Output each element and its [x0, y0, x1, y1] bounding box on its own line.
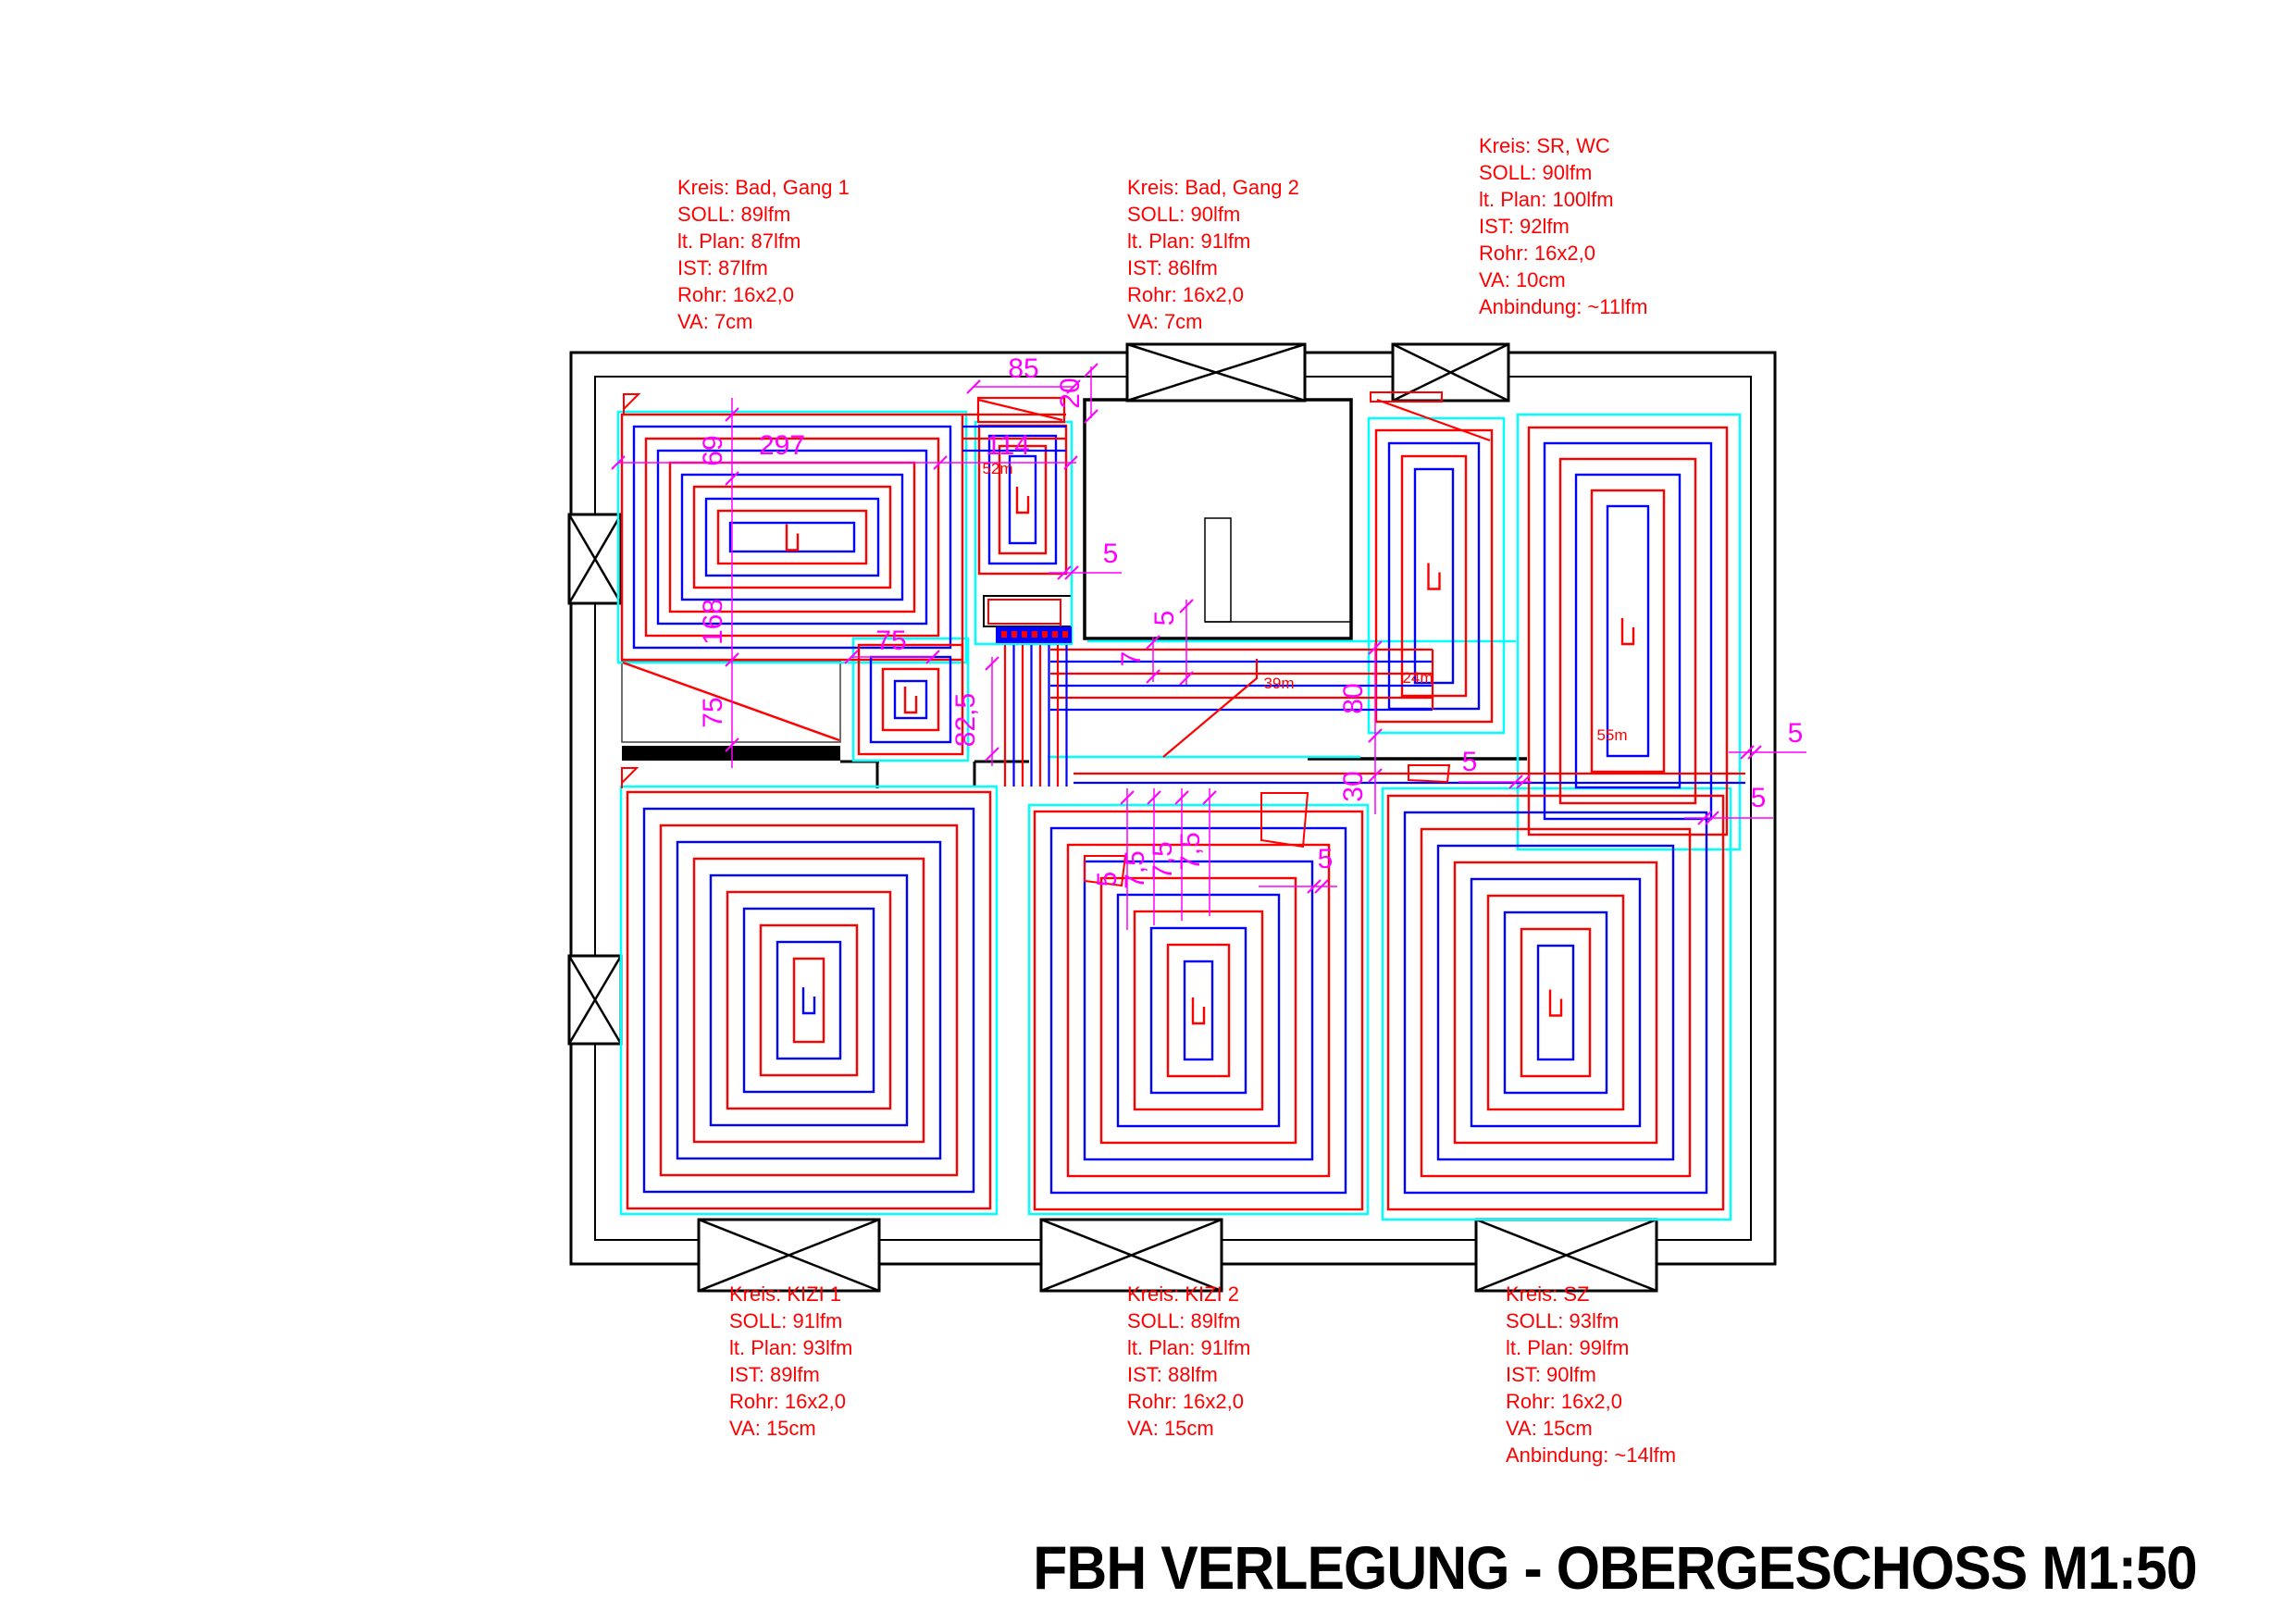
- annotation-line: Anbindung: ~11lfm: [1479, 293, 1647, 320]
- manifold-port: [1001, 631, 1007, 638]
- circuit-annotation-bad-gang-1: Kreis: Bad, Gang 1SOLL: 89lfmlt. Plan: 8…: [677, 174, 850, 335]
- annotation-line: SOLL: 93lfm: [1506, 1307, 1676, 1334]
- window-symbol: [569, 956, 621, 1044]
- dimension-label: 5: [1751, 783, 1767, 813]
- annotation-line: IST: 87lfm: [677, 254, 850, 281]
- annotation-line: Rohr: 16x2,0: [1506, 1388, 1676, 1415]
- dimension-label: 7,5: [1120, 850, 1150, 889]
- annotation-line: IST: 88lfm: [1127, 1361, 1250, 1388]
- dimension-label: 80: [1338, 683, 1369, 713]
- annotation-line: lt. Plan: 93lfm: [729, 1334, 852, 1361]
- dimension-label: 7,5: [1175, 832, 1206, 871]
- dimension-label: 5: [1103, 539, 1119, 569]
- dimension-label: 5: [1788, 718, 1804, 749]
- dimension-label: 5: [1318, 844, 1334, 874]
- manifold-port: [1022, 631, 1027, 638]
- dimension-label: 114: [986, 430, 1030, 461]
- annotation-line: VA: 7cm: [677, 308, 850, 335]
- drawing-title: FBH VERLEGUNG - OBERGESCHOSS M1:50: [998, 1532, 2232, 1603]
- window-symbol: [1127, 344, 1305, 401]
- dimension-label: 20: [1055, 378, 1086, 408]
- annotation-line: Rohr: 16x2,0: [677, 281, 850, 308]
- zone-outline-sz: [1383, 788, 1731, 1220]
- annotation-line: VA: 15cm: [1127, 1415, 1250, 1442]
- annotation-line: VA: 10cm: [1479, 266, 1647, 293]
- annotation-line: Kreis: SZ: [1506, 1281, 1676, 1307]
- dimension-label: 5: [1462, 747, 1478, 777]
- manifold-port: [1011, 631, 1017, 638]
- anbindung-flag: [622, 768, 637, 788]
- manifold-pipe-loop: [988, 600, 1061, 624]
- annotation-line: VA: 15cm: [729, 1415, 852, 1442]
- annotation-line: SOLL: 90lfm: [1479, 159, 1647, 186]
- pipe-length-marker: 52m: [982, 460, 1012, 477]
- manifold-port: [1032, 631, 1037, 638]
- dimension-label: 30: [1338, 771, 1369, 801]
- dimension-label: 85: [1008, 353, 1038, 384]
- zone-outline-wc: [1518, 415, 1740, 849]
- manifold-port: [1042, 631, 1048, 638]
- annotation-line: SOLL: 90lfm: [1127, 201, 1299, 228]
- annotation-line: SOLL: 91lfm: [729, 1307, 852, 1334]
- window-symbol: [569, 514, 621, 603]
- dimension-label: 5: [1092, 872, 1123, 887]
- annotation-line: lt. Plan: 100lfm: [1479, 186, 1647, 213]
- slope-diagonal: [623, 663, 839, 740]
- stair-room: [1085, 400, 1351, 638]
- circuit-annotation-sr-wc: Kreis: SR, WCSOLL: 90lfmlt. Plan: 100lfm…: [1479, 132, 1647, 320]
- annotation-line: lt. Plan: 91lfm: [1127, 1334, 1250, 1361]
- circuit-annotation-kizi-2: Kreis: KIZI 2SOLL: 89lfmlt. Plan: 91lfmI…: [1127, 1281, 1250, 1442]
- annotation-line: Rohr: 16x2,0: [729, 1388, 852, 1415]
- dimension-label: 82,5: [950, 693, 981, 747]
- annotation-line: Kreis: Bad, Gang 1: [677, 174, 850, 201]
- manifold: [988, 600, 1072, 787]
- annotation-line: Anbindung: ~14lfm: [1506, 1442, 1676, 1468]
- dimension-label: 7: [1116, 651, 1147, 667]
- annotation-line: Kreis: KIZI 1: [729, 1281, 852, 1307]
- annotation-line: IST: 90lfm: [1506, 1361, 1676, 1388]
- annotation-line: SOLL: 89lfm: [677, 201, 850, 228]
- dimension-label: 297: [759, 430, 805, 461]
- dimension-label: 69: [698, 435, 728, 465]
- dimension-label: 75: [698, 697, 728, 727]
- heating-coil-kizi-1: [627, 792, 990, 1208]
- annotation-line: Kreis: Bad, Gang 2: [1127, 174, 1299, 201]
- annotation-line: Kreis: SR, WC: [1479, 132, 1647, 159]
- manifold-port: [1062, 631, 1068, 638]
- annotation-line: IST: 89lfm: [729, 1361, 852, 1388]
- annotation-line: VA: 7cm: [1127, 308, 1299, 335]
- heating-coil-mid: [859, 645, 962, 754]
- connection-pipes: [962, 398, 1745, 783]
- heating-coil-sr: [1376, 430, 1492, 722]
- drawing-canvas: 85 20 297 114 69 168 75 75 82,5 5 7 5 5 …: [0, 0, 2296, 1623]
- annotation-line: lt. Plan: 91lfm: [1127, 228, 1299, 254]
- circuit-annotation-kizi-1: Kreis: KIZI 1SOLL: 91lfmlt. Plan: 93lfmI…: [729, 1281, 852, 1442]
- annotation-line: Kreis: KIZI 2: [1127, 1281, 1250, 1307]
- annotation-line: Rohr: 16x2,0: [1127, 1388, 1250, 1415]
- annotation-line: VA: 15cm: [1506, 1415, 1676, 1442]
- pipe-length-marker: 24m: [1402, 669, 1433, 687]
- pipe-length-marker: 55m: [1596, 726, 1627, 744]
- heating-coil-sz: [1388, 796, 1723, 1209]
- annotation-line: Rohr: 16x2,0: [1127, 281, 1299, 308]
- annotation-line: Rohr: 16x2,0: [1479, 240, 1647, 266]
- manifold-drop-pipes: [1005, 645, 1067, 787]
- dimension-label: 75: [875, 626, 906, 656]
- annotation-line: lt. Plan: 99lfm: [1506, 1334, 1676, 1361]
- annotation-line: IST: 92lfm: [1479, 213, 1647, 240]
- dimension-label: 5: [1149, 611, 1180, 626]
- pipe-length-marker: 39m: [1263, 675, 1294, 692]
- circuit-annotation-bad-gang-2: Kreis: Bad, Gang 2SOLL: 90lfmlt. Plan: 9…: [1127, 174, 1299, 335]
- annotation-line: SOLL: 89lfm: [1127, 1307, 1250, 1334]
- annotation-line: IST: 86lfm: [1127, 254, 1299, 281]
- anbindung-flag: [1261, 793, 1308, 847]
- annotation-line: lt. Plan: 87lfm: [677, 228, 850, 254]
- manifold-port: [1052, 631, 1058, 638]
- wall-bar: [622, 746, 840, 761]
- circuit-annotation-sz: Kreis: SZSOLL: 93lfmlt. Plan: 99lfmIST: …: [1506, 1281, 1676, 1468]
- dimension-label: 168: [698, 599, 728, 645]
- dimension-label: 7,5: [1148, 841, 1178, 880]
